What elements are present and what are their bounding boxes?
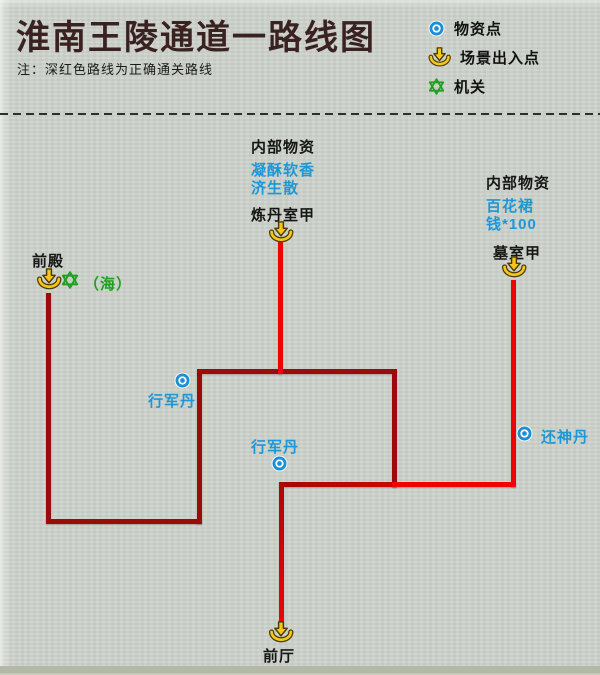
label-mechanism-note-sea: （海）	[84, 273, 132, 294]
legend-label: 机关	[454, 76, 486, 97]
scene-exit-icon-front-hall-top	[36, 268, 62, 291]
scene-exit-icon-front-hall-bottom	[268, 621, 294, 644]
supply-point-icon	[428, 20, 445, 37]
label-item-money-100: 钱*100	[486, 213, 537, 234]
supply-point-icon-2	[271, 455, 288, 472]
supply-point-icon-3	[516, 425, 533, 442]
route-segment-front-hall-vertical	[46, 293, 51, 522]
supply-point-icon-1	[174, 372, 191, 389]
route-segment-alchemy-room-vertical	[278, 242, 283, 374]
scene-exit-icon-tomb-room	[501, 256, 527, 279]
route-note: 注：深红色路线为正确通关路线	[17, 59, 213, 78]
label-supply-xingjundan-1: 行军丹	[148, 390, 196, 411]
scene-exit-icon	[428, 47, 451, 68]
legend: 物资点 场景出入点 机关	[428, 14, 540, 101]
mechanism-icon-front-hall	[61, 271, 79, 289]
route-segment-tomb-room-vertical	[511, 280, 516, 487]
route-segment-loop-right-vertical	[392, 369, 397, 487]
label-inner-supplies-center: 内部物资	[251, 136, 315, 157]
dashed-divider	[0, 113, 600, 115]
legend-item-mechanism: 机关	[428, 72, 540, 101]
route-segment-middle-horizontal-left	[279, 482, 397, 487]
scene-exit-icon-alchemy-room	[268, 221, 294, 244]
route-segment-loop-left-vertical	[197, 371, 202, 524]
route-segment-loop-top-horizontal	[197, 369, 397, 374]
page-title: 淮南王陵通道一路线图	[16, 10, 376, 59]
route-segment-middle-horizontal-right	[392, 482, 516, 487]
route-segment-bottom-horizontal	[46, 519, 202, 524]
bottom-edge-strip	[0, 666, 600, 675]
label-inner-supplies-right: 内部物资	[486, 172, 550, 193]
legend-label: 物资点	[454, 18, 502, 39]
label-supply-xingjundan-2: 行军丹	[251, 436, 299, 457]
label-item-jishengsan: 济生散	[251, 177, 299, 198]
map-canvas: 淮南王陵通道一路线图 注：深红色路线为正确通关路线 物资点 场景出入点 机关 内…	[0, 0, 600, 675]
legend-item-supply: 物资点	[428, 14, 540, 43]
legend-label: 场景出入点	[460, 47, 540, 68]
mechanism-icon	[428, 78, 445, 95]
legend-item-exit: 场景出入点	[428, 43, 540, 72]
label-front-hall-bottom: 前厅	[263, 645, 295, 666]
label-supply-huanshendan: 还神丹	[541, 426, 589, 447]
route-segment-front-hall-bottom-vertical	[279, 482, 284, 624]
